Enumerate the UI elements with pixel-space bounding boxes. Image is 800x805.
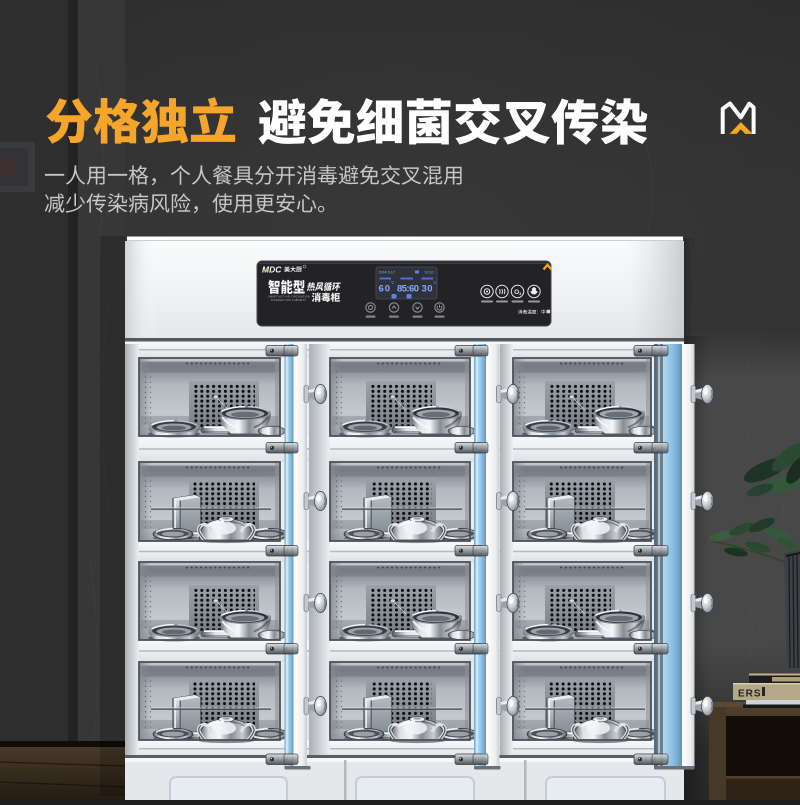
svg-text:2024-5-17: 2024-5-17 <box>379 271 395 275</box>
svg-text:ERS: ERS <box>738 689 762 700</box>
svg-text:MDC: MDC <box>262 265 282 275</box>
svg-text:10:10: 10:10 <box>425 271 434 275</box>
svg-text:30: 30 <box>422 284 433 295</box>
svg-text:85:60: 85:60 <box>397 284 419 295</box>
svg-text:60: 60 <box>379 284 391 295</box>
svg-text:DISINFECTION CABINET®: DISINFECTION CABINET® <box>271 299 306 302</box>
